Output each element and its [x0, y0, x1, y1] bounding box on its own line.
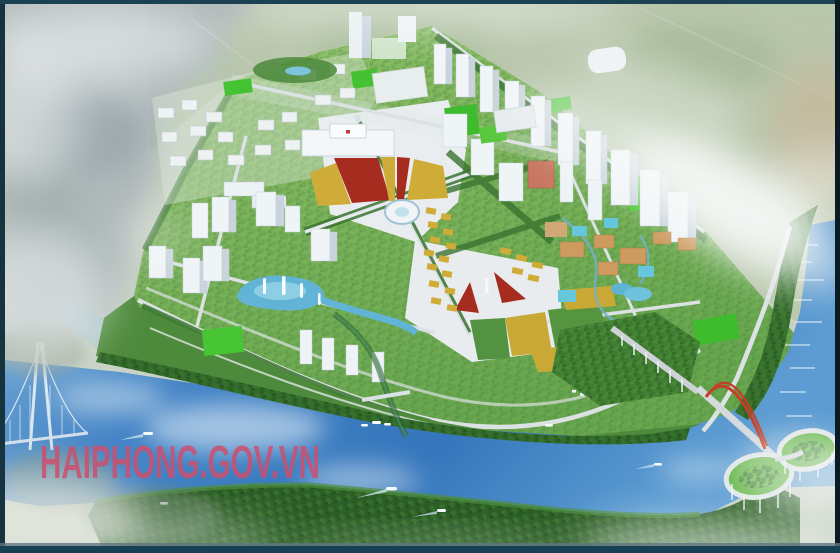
svg-text:HAIPHONG.GOV.VN: HAIPHONG.GOV.VN: [40, 436, 320, 488]
